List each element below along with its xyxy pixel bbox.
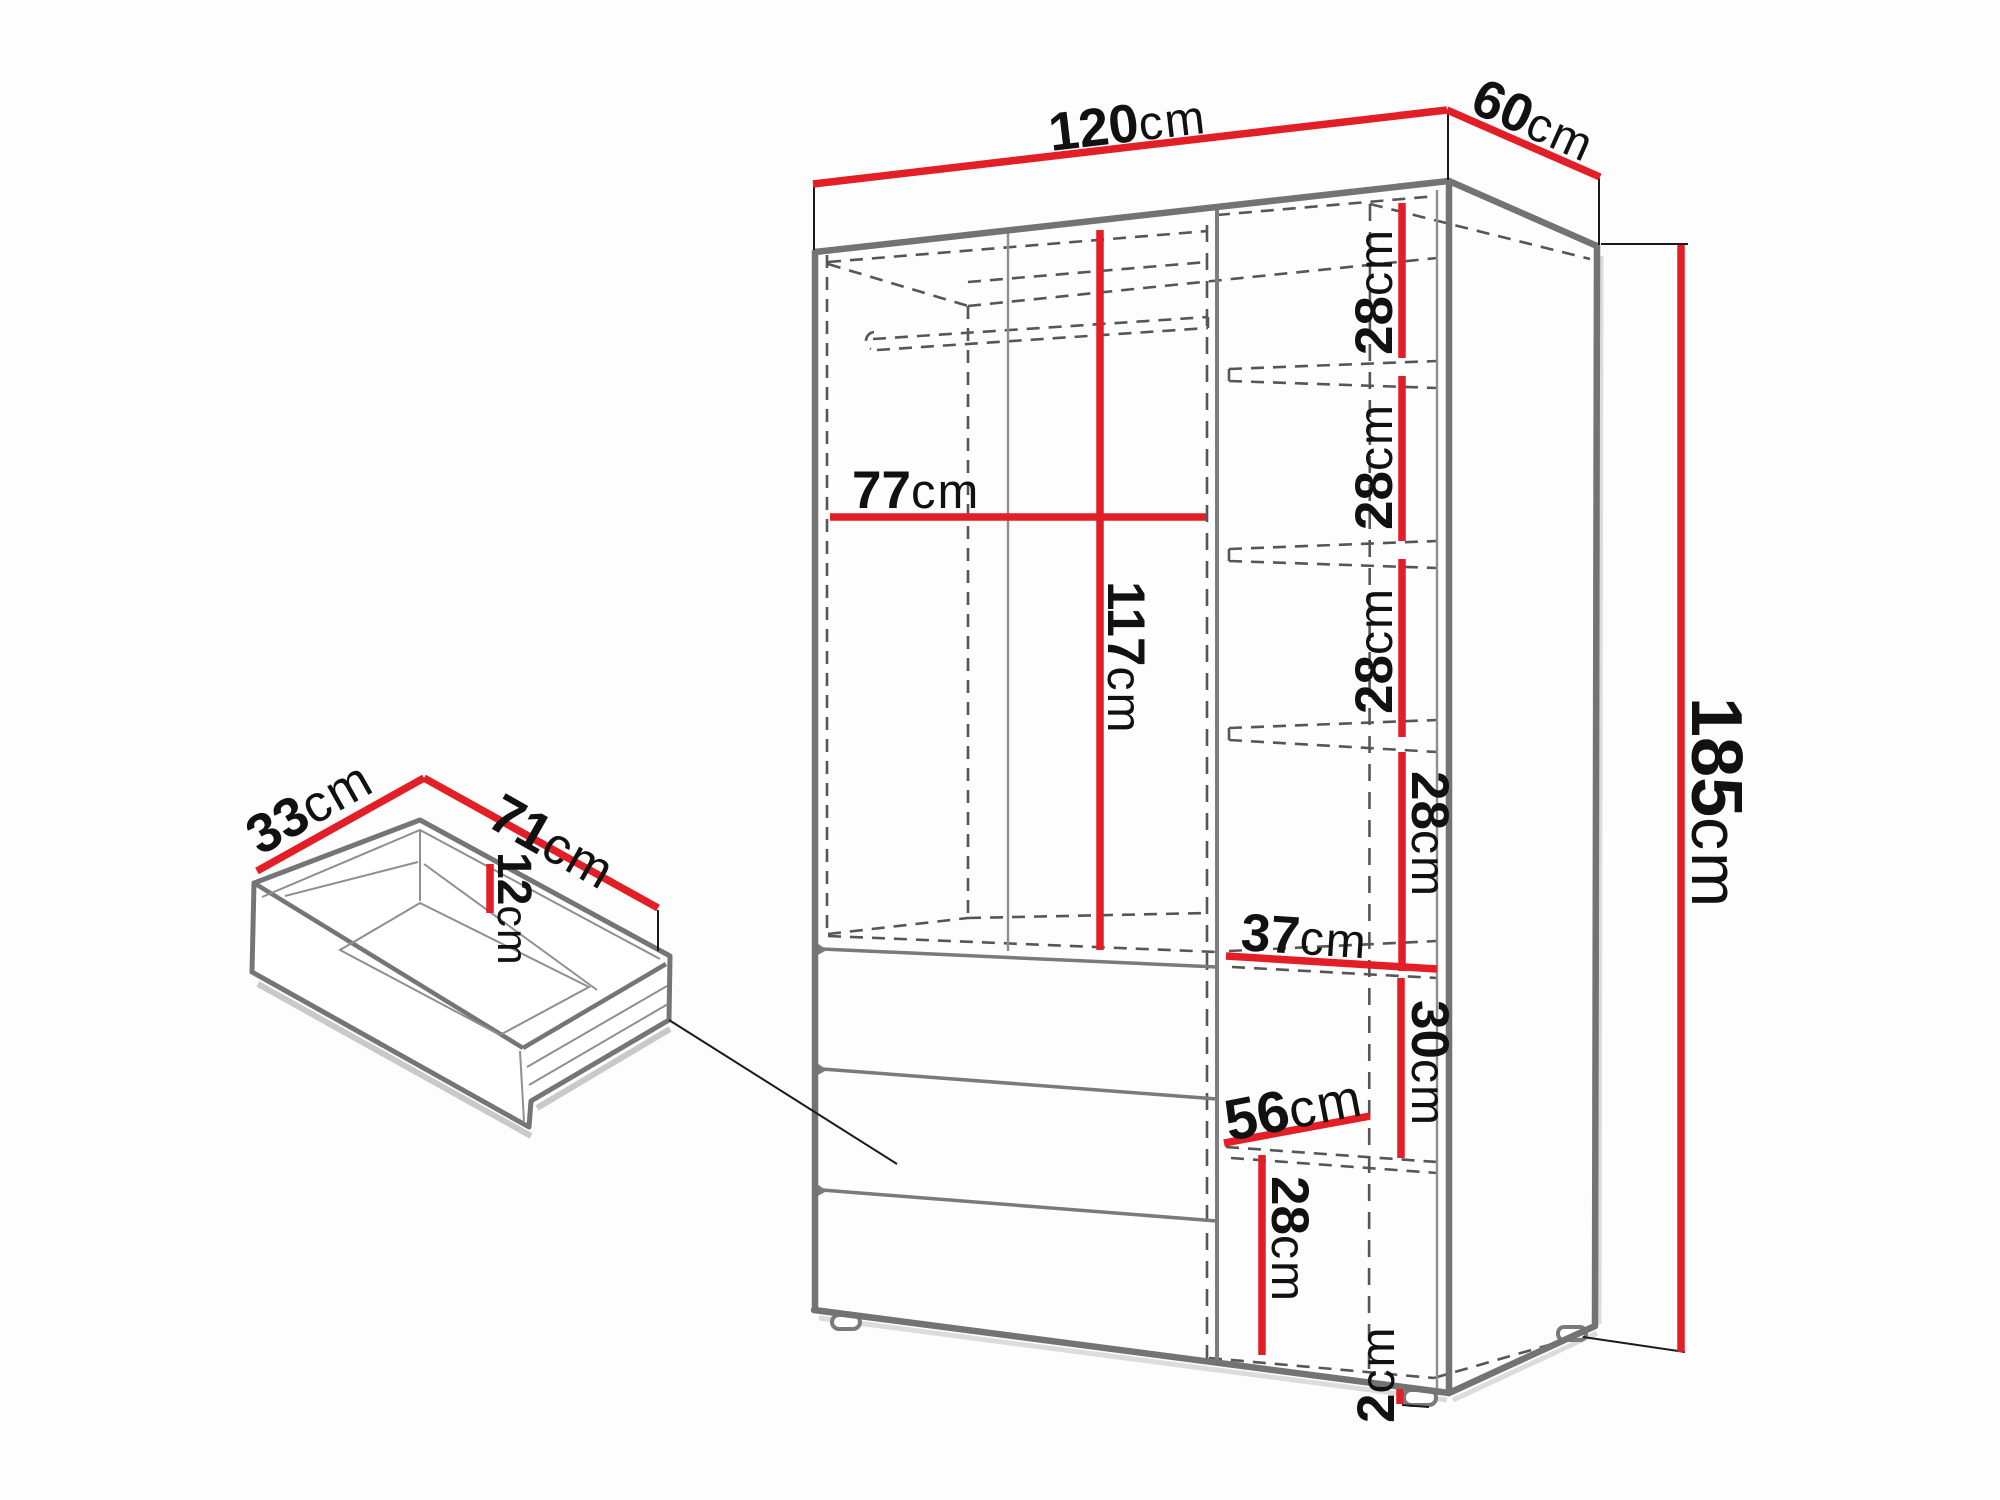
svg-text:28cm: 28cm bbox=[1260, 1176, 1319, 1303]
svg-text:28cm: 28cm bbox=[1345, 228, 1404, 355]
svg-text:30cm: 30cm bbox=[1400, 1000, 1459, 1127]
svg-text:117cm: 117cm bbox=[1096, 581, 1155, 735]
svg-text:28cm: 28cm bbox=[1345, 403, 1404, 530]
svg-text:2cm: 2cm bbox=[1347, 1326, 1406, 1423]
svg-text:28cm: 28cm bbox=[1345, 587, 1404, 714]
svg-text:28cm: 28cm bbox=[1400, 771, 1459, 898]
svg-text:185cm: 185cm bbox=[1676, 697, 1756, 909]
svg-text:77cm: 77cm bbox=[852, 461, 980, 520]
svg-text:12cm: 12cm bbox=[487, 852, 540, 967]
